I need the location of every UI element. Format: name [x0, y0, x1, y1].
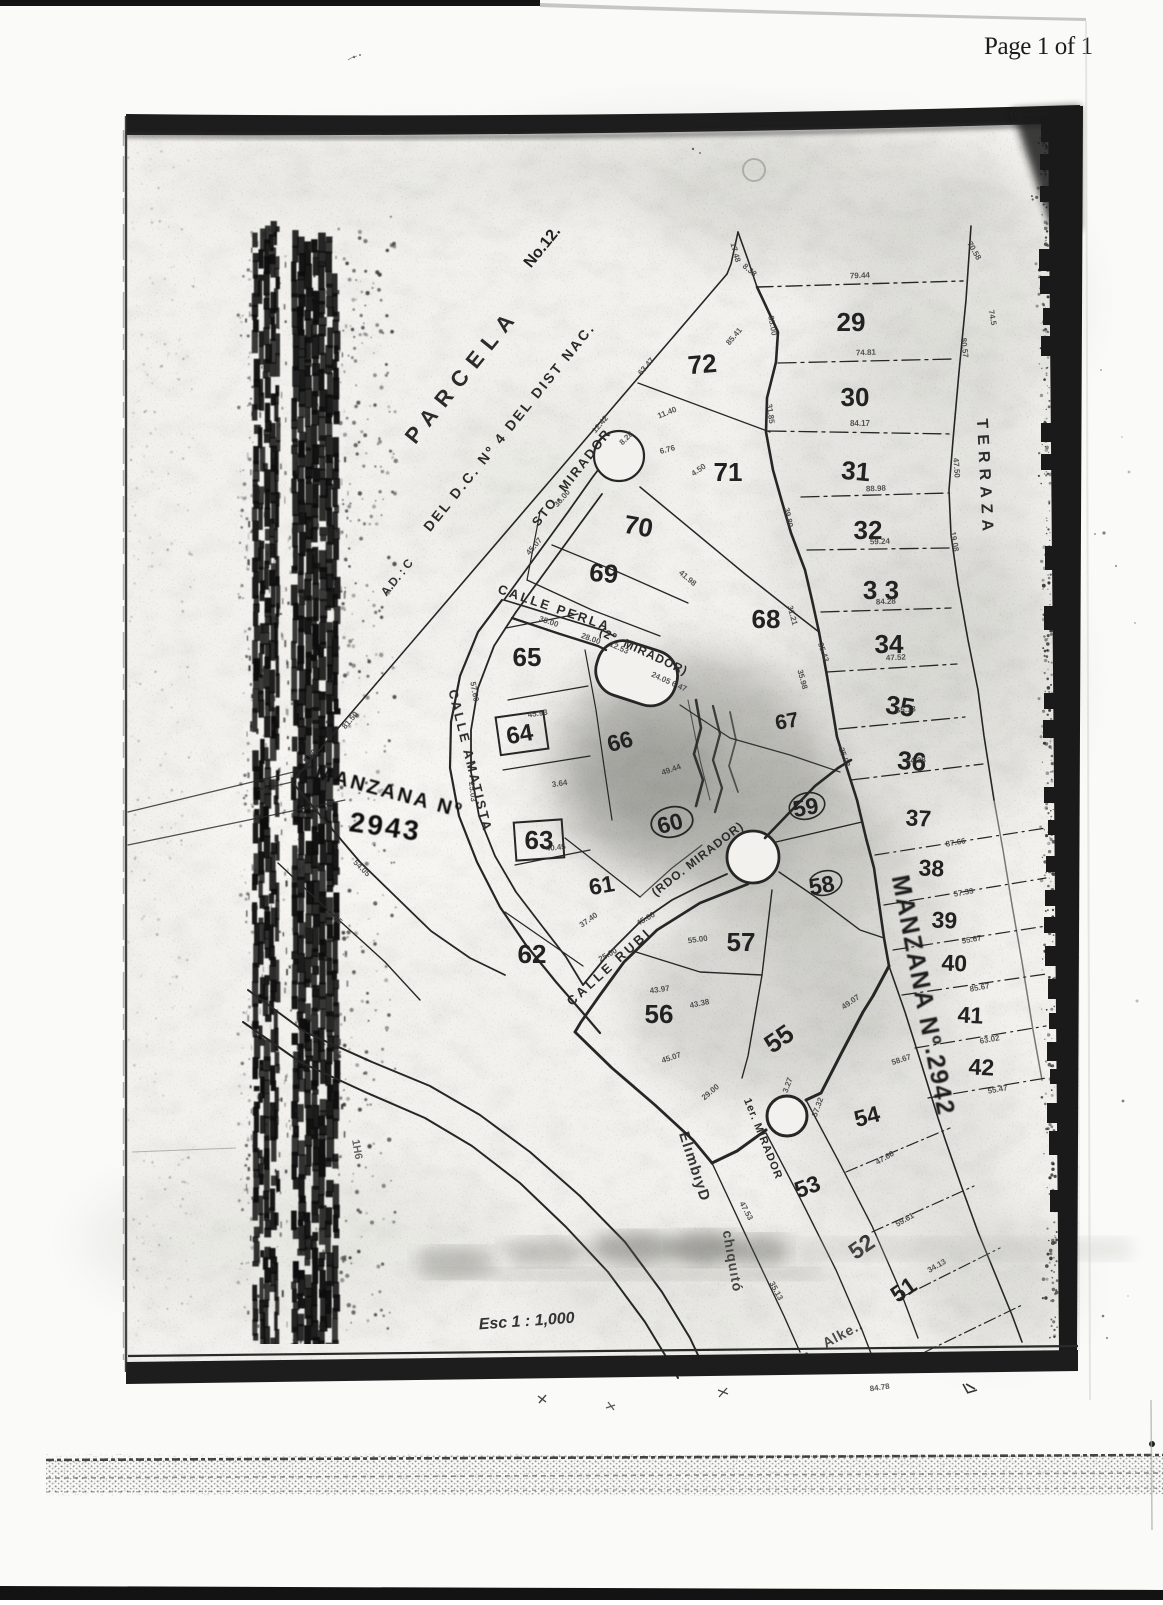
svg-text:42: 42 [968, 1053, 995, 1080]
svg-text:58: 58 [807, 870, 837, 900]
svg-text:37: 37 [905, 804, 932, 831]
svg-text:47.50: 47.50 [951, 458, 961, 479]
svg-text:70: 70 [622, 509, 656, 544]
svg-text:67: 67 [773, 708, 800, 735]
svg-text:64: 64 [504, 719, 536, 750]
svg-text:40: 40 [941, 950, 967, 977]
svg-text:88.98: 88.98 [866, 484, 887, 494]
svg-text:38: 38 [918, 854, 945, 881]
svg-text:39: 39 [931, 906, 958, 933]
svg-text:84.17: 84.17 [850, 419, 871, 428]
svg-text:62: 62 [518, 939, 547, 969]
svg-text:47.52: 47.52 [886, 652, 907, 662]
svg-text:31: 31 [840, 455, 871, 487]
svg-text:59.24: 59.24 [870, 537, 891, 547]
svg-text:59: 59 [791, 792, 821, 822]
svg-text:71: 71 [714, 457, 743, 487]
svg-text:56: 56 [645, 999, 674, 1029]
svg-text:69: 69 [588, 557, 619, 589]
svg-text:61: 61 [587, 870, 617, 900]
svg-text:Page 1 of 1: Page 1 of 1 [984, 33, 1093, 60]
svg-text:74.81: 74.81 [856, 348, 877, 358]
svg-text:84.28: 84.28 [906, 755, 927, 765]
svg-text:35.13: 35.13 [896, 704, 917, 714]
svg-text:84.28: 84.28 [876, 596, 897, 606]
svg-text:79.44: 79.44 [850, 271, 871, 281]
svg-text:29: 29 [837, 307, 866, 337]
svg-text:68: 68 [752, 604, 781, 634]
svg-text:65: 65 [513, 642, 542, 672]
svg-text:72: 72 [687, 348, 718, 380]
svg-text:57: 57 [727, 927, 756, 957]
svg-text:41: 41 [957, 1001, 984, 1028]
svg-text:30: 30 [841, 382, 870, 412]
